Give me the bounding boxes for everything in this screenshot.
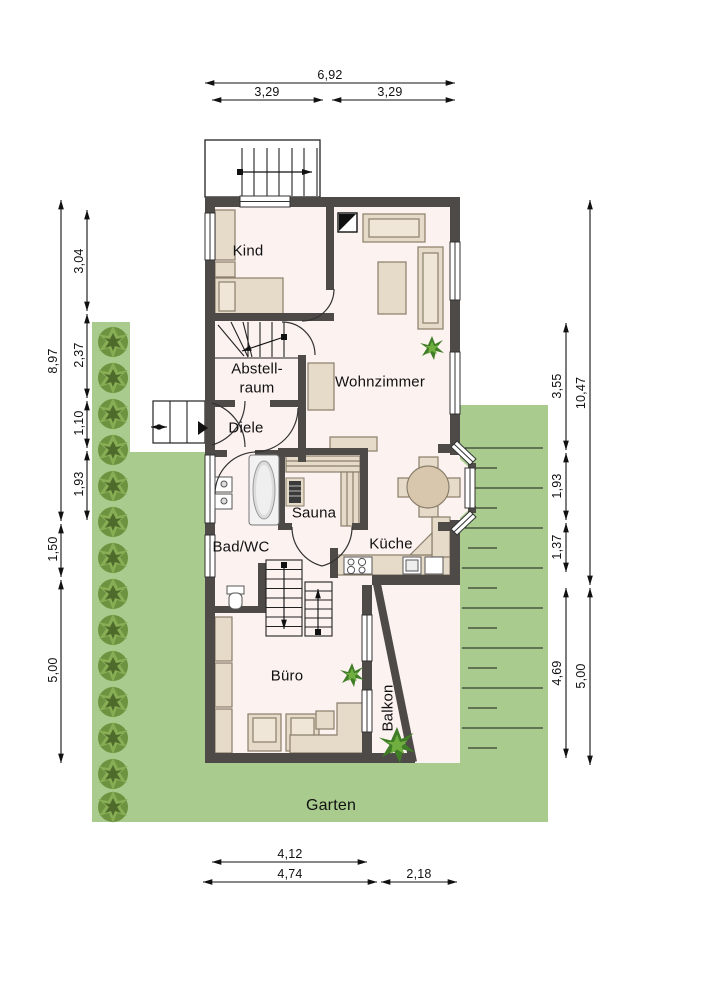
- floor-plan: Kind Wohnzimmer Abstell-raum Diele Sauna…: [0, 0, 706, 1000]
- dim-bottom-412: 4,12: [277, 847, 302, 861]
- dim-left-inner-237: 2,37: [72, 342, 86, 367]
- room-label-kind: Kind: [233, 243, 264, 260]
- dim-left-inner-304: 3,04: [72, 248, 86, 273]
- dim-left-outer-500: 5,00: [46, 657, 60, 682]
- entrance-steps: [151, 401, 205, 443]
- dim-left-outer-897: 8,97: [46, 348, 60, 373]
- dim-bottom-218: 2,18: [406, 867, 431, 881]
- room-label-kueche: Küche: [369, 536, 413, 553]
- dim-right-outer-1047: 10,47: [574, 377, 588, 409]
- dim-left-outer-150: 1,50: [46, 536, 60, 561]
- sauna-heater: [286, 478, 304, 506]
- dim-left-inner-110: 1,10: [72, 410, 86, 435]
- floor-plan-drawing: [0, 0, 706, 1000]
- room-label-sauna: Sauna: [292, 505, 336, 522]
- abstellraum-line1: Abstell-: [231, 360, 283, 379]
- room-label-buero: Büro: [271, 668, 304, 685]
- toilet: [227, 586, 244, 609]
- stove: [344, 557, 372, 574]
- dim-top-total: 6,92: [317, 68, 342, 82]
- dim-right-inner-355: 3,55: [550, 373, 564, 398]
- dim-top-left: 3,29: [254, 85, 279, 99]
- garden-label: Garten: [306, 797, 356, 815]
- room-label-diele: Diele: [228, 420, 263, 437]
- bathtub: [249, 455, 279, 525]
- room-label-abstellraum: Abstell-raum: [231, 360, 283, 398]
- dim-top-right: 3,29: [377, 85, 402, 99]
- room-label-wohnzimmer: Wohnzimmer: [335, 374, 425, 391]
- dim-bottom-474: 4,74: [277, 867, 302, 881]
- chimney: [338, 213, 357, 232]
- room-label-bad-wc: Bad/WC: [212, 539, 269, 556]
- room-label-balkon: Balkon: [380, 684, 397, 731]
- stairs-upper: [215, 321, 298, 358]
- exterior-stair-top: [205, 140, 320, 197]
- dim-right-outer-500: 5,00: [574, 663, 588, 688]
- dim-right-inner-193: 1,93: [550, 473, 564, 498]
- dim-right-inner-137: 1,37: [550, 534, 564, 559]
- dim-left-inner-193: 1,93: [72, 471, 86, 496]
- dim-right-inner-469: 4,69: [550, 660, 564, 685]
- abstellraum-line2: raum: [231, 379, 283, 398]
